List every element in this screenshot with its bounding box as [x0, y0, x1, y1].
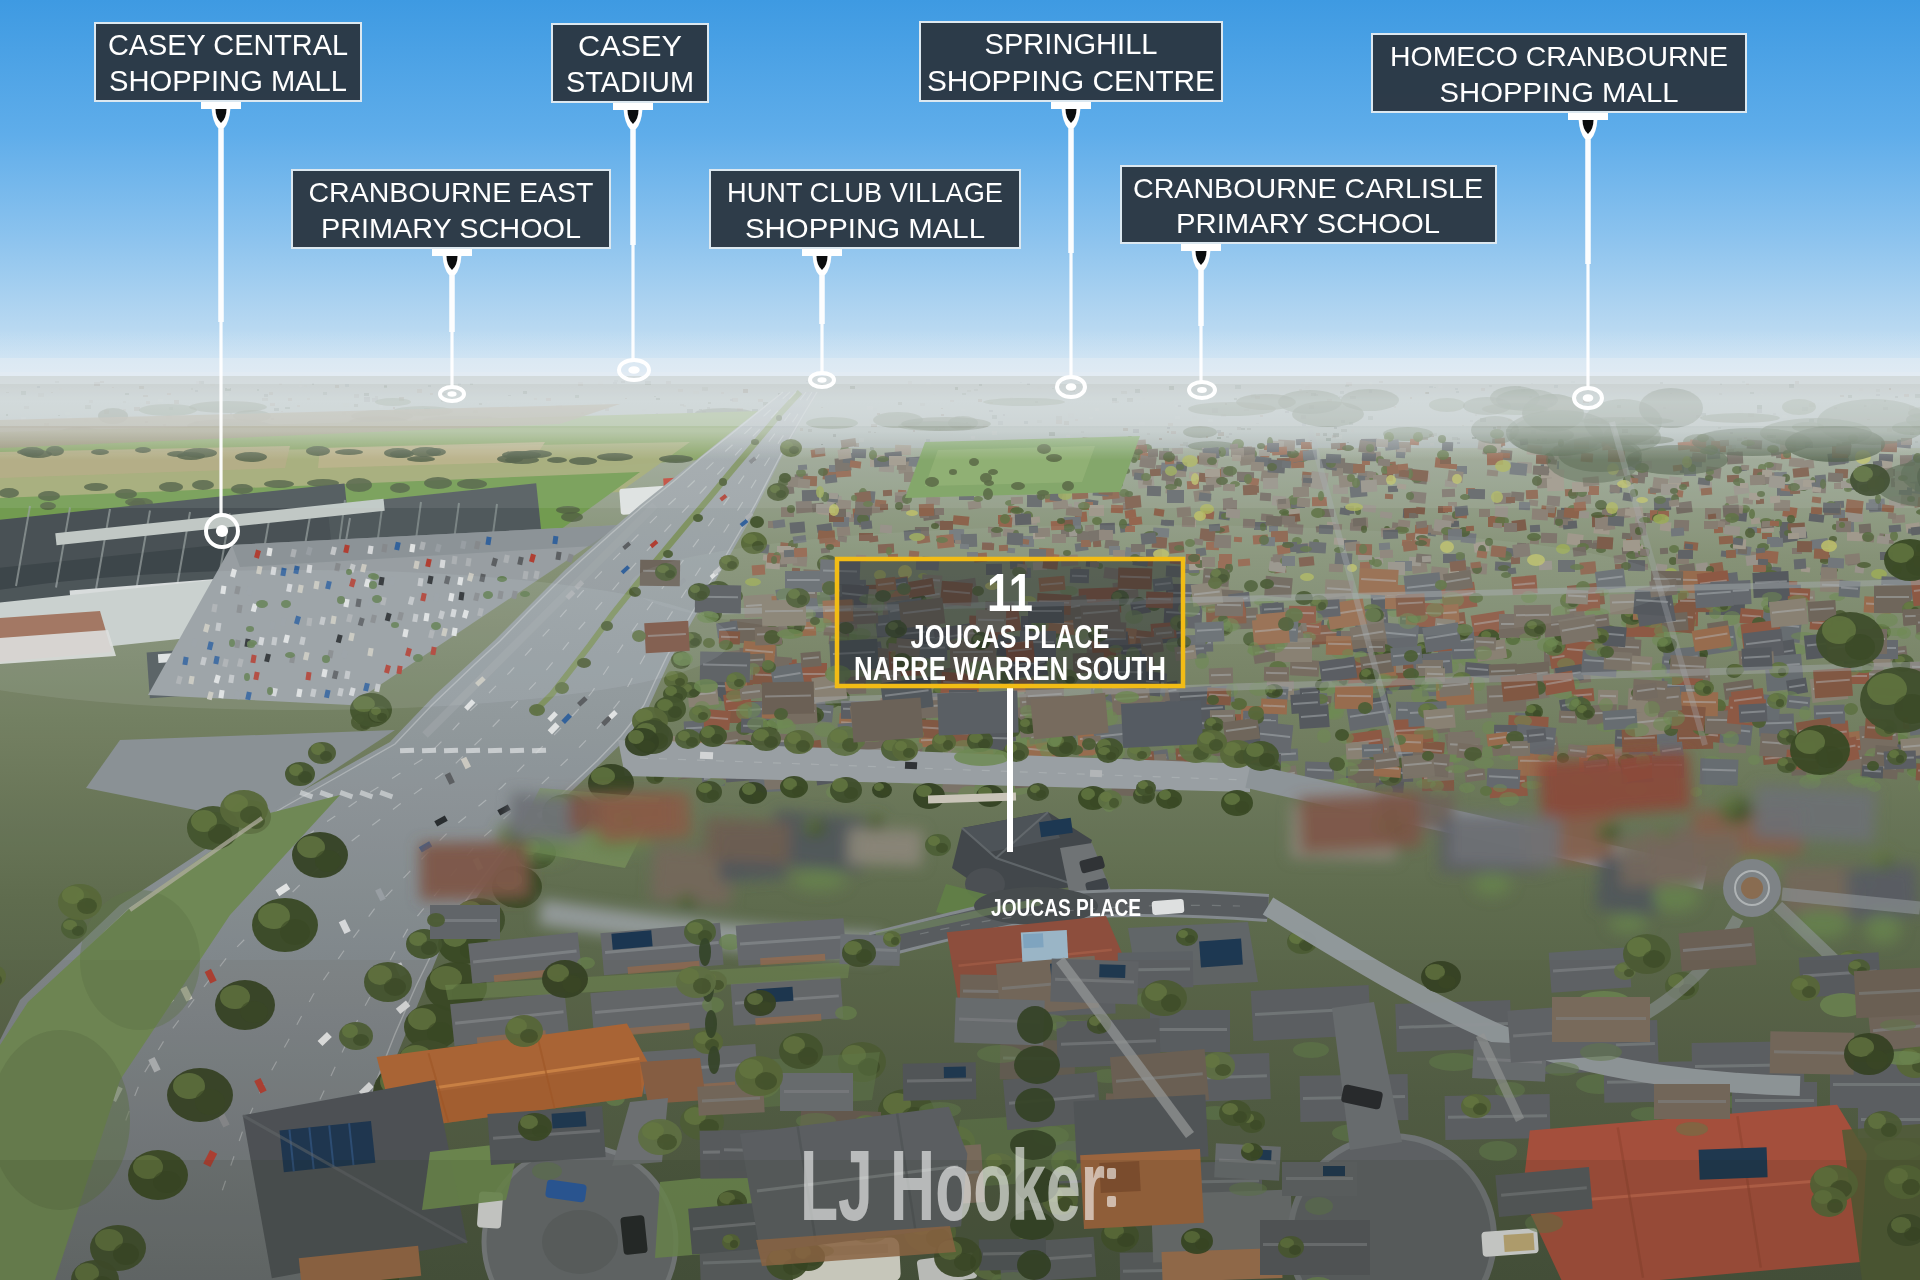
svg-text:HUNT CLUB VILLAGE: HUNT CLUB VILLAGE — [727, 176, 1003, 208]
svg-text:CASEY: CASEY — [578, 30, 682, 62]
svg-text:SHOPPING MALL: SHOPPING MALL — [745, 212, 985, 244]
svg-text:PRIMARY SCHOOL: PRIMARY SCHOOL — [1176, 207, 1440, 239]
svg-text:STADIUM: STADIUM — [566, 66, 694, 98]
svg-text:SPRINGHILL: SPRINGHILL — [985, 27, 1158, 60]
svg-text:SHOPPING MALL: SHOPPING MALL — [1440, 76, 1679, 108]
svg-text:CRANBOURNE EAST: CRANBOURNE EAST — [309, 176, 594, 208]
svg-text:PRIMARY SCHOOL: PRIMARY SCHOOL — [321, 212, 581, 244]
svg-text:SHOPPING CENTRE: SHOPPING CENTRE — [927, 64, 1215, 97]
svg-text:SHOPPING MALL: SHOPPING MALL — [109, 65, 347, 97]
svg-text:HOMECO CRANBOURNE: HOMECO CRANBOURNE — [1390, 40, 1728, 72]
svg-text:LJ Hooker: LJ Hooker — [800, 1129, 1105, 1241]
svg-text:CASEY CENTRAL: CASEY CENTRAL — [108, 29, 348, 61]
svg-text:11: 11 — [987, 562, 1033, 622]
svg-text:JOUCAS PLACE: JOUCAS PLACE — [991, 894, 1141, 921]
svg-text:CRANBOURNE CARLISLE: CRANBOURNE CARLISLE — [1133, 172, 1483, 204]
svg-text:NARRE WARREN SOUTH: NARRE WARREN SOUTH — [854, 650, 1166, 687]
